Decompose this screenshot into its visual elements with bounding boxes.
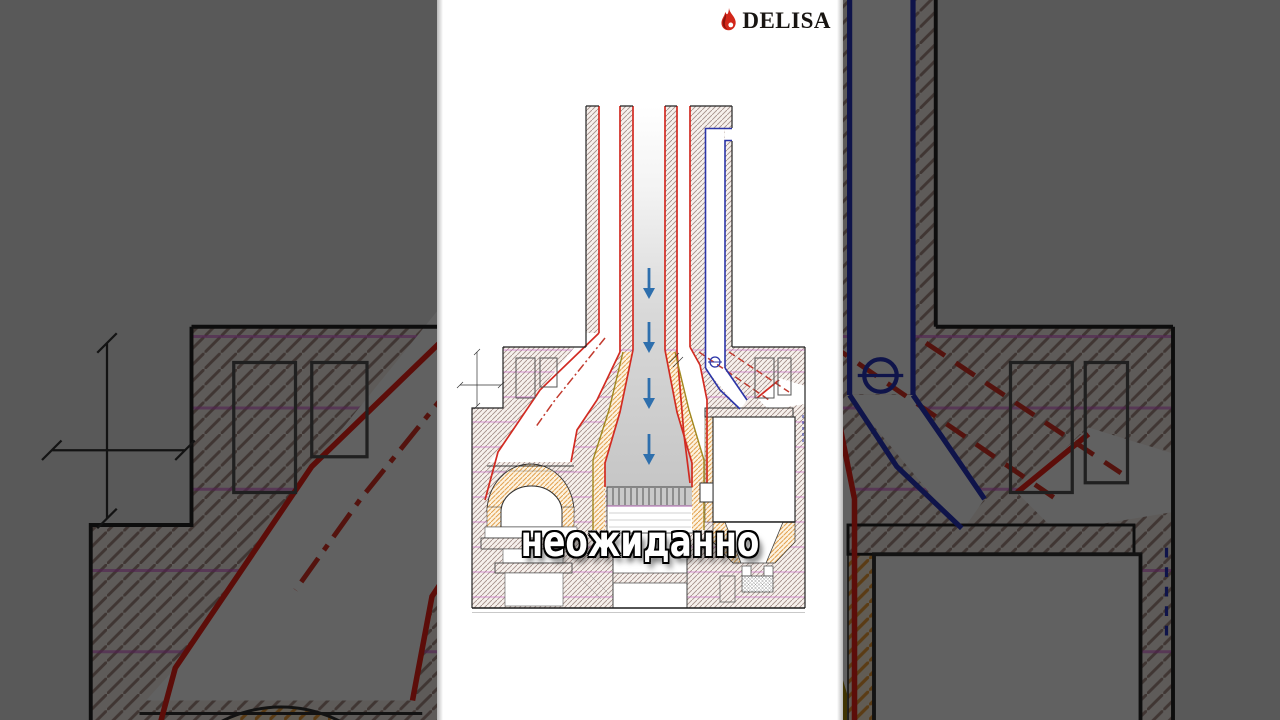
video-content-panel: DELISA неожиданно — [437, 0, 843, 720]
brand-watermark: DELISA — [718, 7, 831, 33]
stove-cross-section-diagram — [437, 0, 843, 720]
flame-icon — [718, 7, 740, 33]
video-frame: DELISA неожиданно — [0, 0, 1280, 720]
brand-text: DELISA — [742, 9, 831, 32]
